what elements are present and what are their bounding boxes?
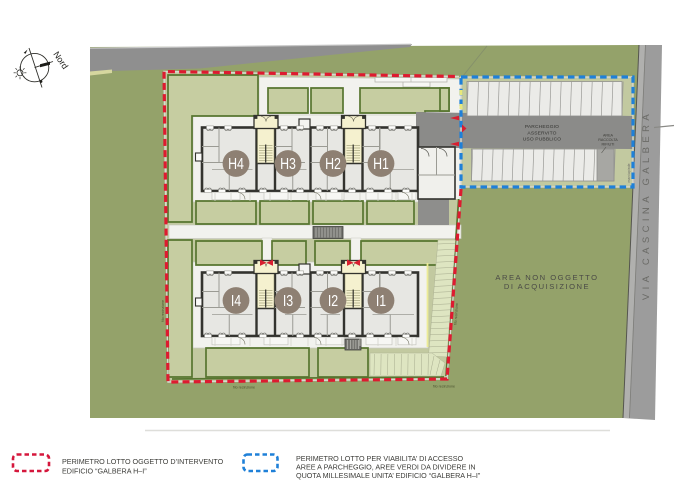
svg-text:VIA CASCINA GALBERA: VIA CASCINA GALBERA (641, 110, 652, 300)
svg-text:H1: H1 (373, 155, 389, 173)
svg-text:H4: H4 (228, 155, 244, 173)
svg-text:I2: I2 (328, 292, 339, 310)
svg-text:filo recinzione: filo recinzione (433, 385, 455, 389)
svg-text:PERIMETRO LOTTO OGGETTO D’INTE: PERIMETRO LOTTO OGGETTO D’INTERVENTO (62, 457, 224, 466)
svg-text:I4: I4 (231, 292, 242, 310)
svg-text:PARCHEGGIO: PARCHEGGIO (525, 124, 559, 130)
svg-text:QUOTA MILLESIMALE UNITA’ EDIFI: QUOTA MILLESIMALE UNITA’ EDIFICIO “GALBE… (296, 471, 481, 480)
svg-text:USO PUBBLICO: USO PUBBLICO (523, 137, 562, 143)
svg-text:filo recinzione: filo recinzione (233, 386, 255, 390)
svg-text:marciapiede: marciapiede (627, 163, 631, 182)
svg-text:RACCOLTA: RACCOLTA (598, 138, 618, 142)
svg-text:RIFIUTI: RIFIUTI (602, 143, 615, 147)
svg-text:I1: I1 (376, 292, 387, 310)
svg-text:H3: H3 (280, 155, 296, 173)
svg-text:AREA NON OGGETTO: AREA NON OGGETTO (495, 273, 598, 282)
svg-text:EDIFICIO “GALBERA H–I”: EDIFICIO “GALBERA H–I” (62, 467, 147, 476)
svg-text:DI ACQUISIZIONE: DI ACQUISIZIONE (504, 282, 590, 291)
svg-text:Nord: Nord (51, 50, 70, 71)
svg-text:I3: I3 (283, 292, 294, 310)
svg-text:filo recinzione: filo recinzione (161, 300, 165, 322)
svg-text:AREA: AREA (603, 134, 614, 138)
svg-text:ASSERVITO: ASSERVITO (527, 130, 556, 136)
svg-text:H2: H2 (325, 155, 341, 173)
